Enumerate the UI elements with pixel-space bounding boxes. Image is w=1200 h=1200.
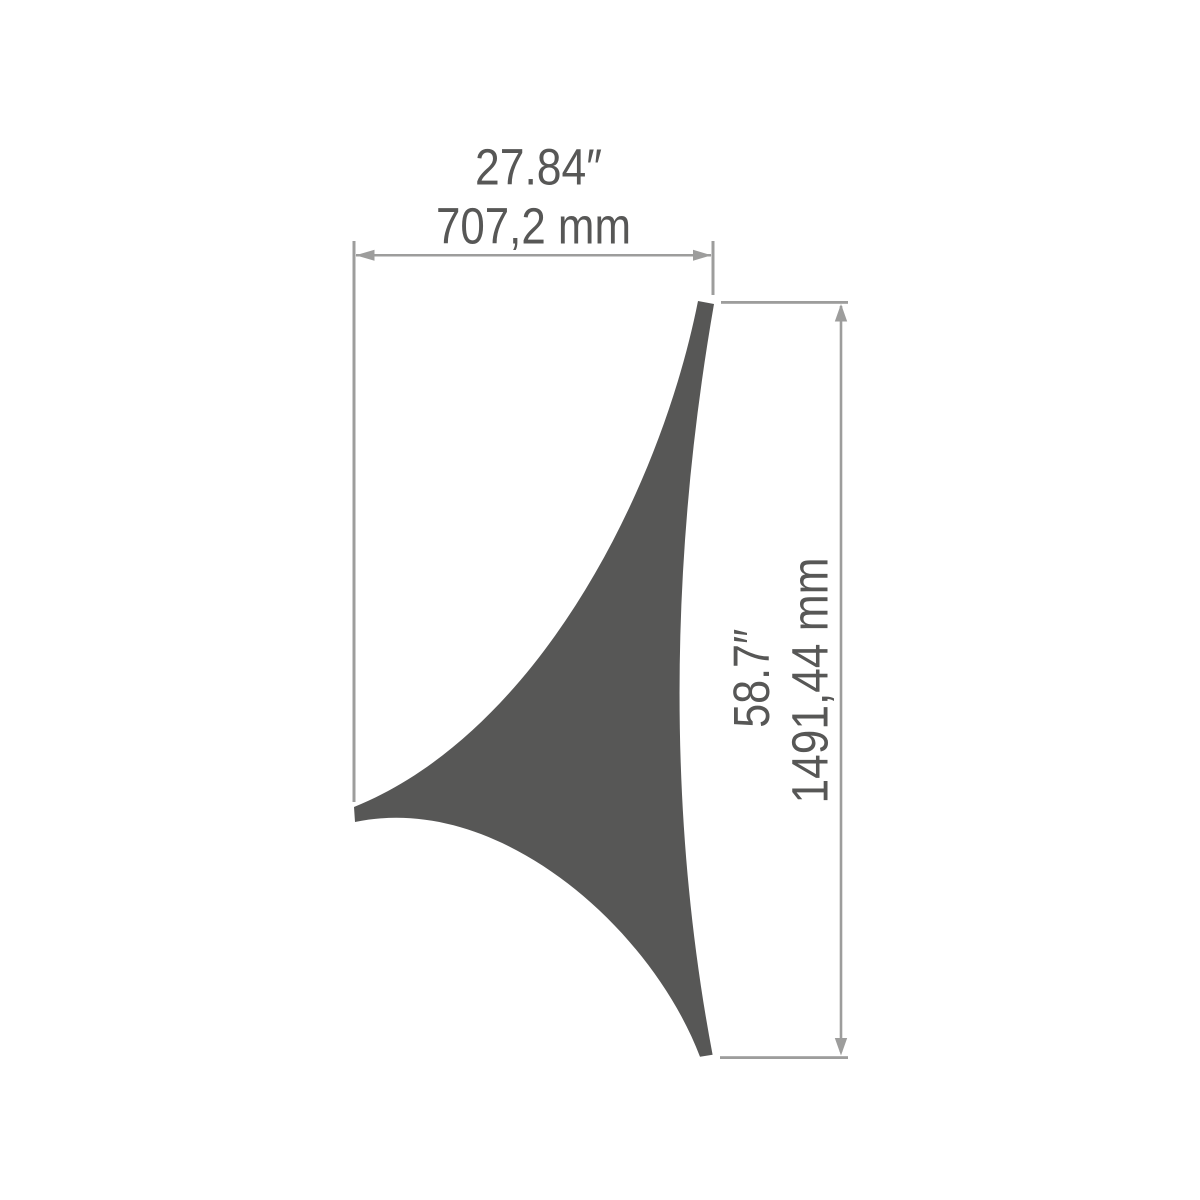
svg-text:27.84″: 27.84″	[475, 139, 602, 196]
svg-text:58.7″: 58.7″	[723, 629, 780, 728]
svg-text:707,2 mm: 707,2 mm	[436, 198, 631, 255]
svg-text:1491,44 mm: 1491,44 mm	[782, 558, 839, 804]
